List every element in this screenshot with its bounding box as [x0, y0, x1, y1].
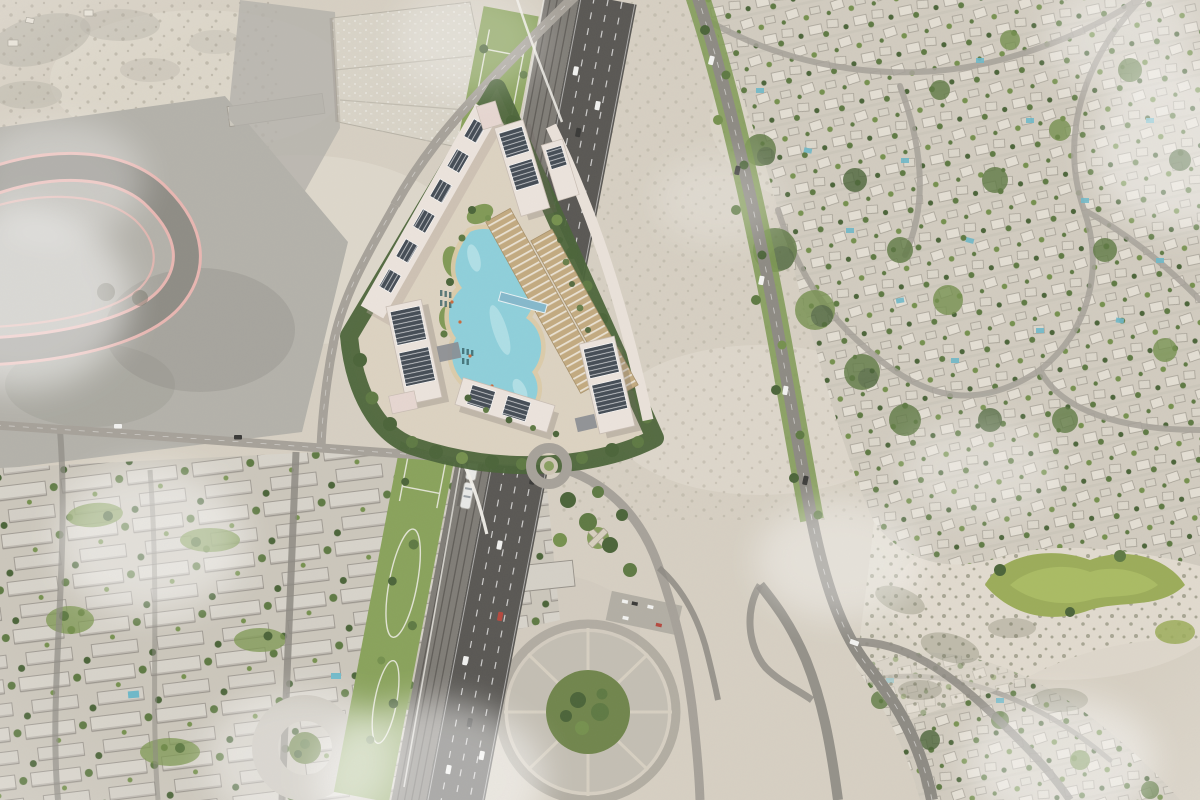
vignette [0, 0, 1200, 800]
map-canvas: Desert ground Karting circuit [0, 0, 1200, 800]
aerial-map: Desert ground Karting circuit [0, 0, 1200, 800]
